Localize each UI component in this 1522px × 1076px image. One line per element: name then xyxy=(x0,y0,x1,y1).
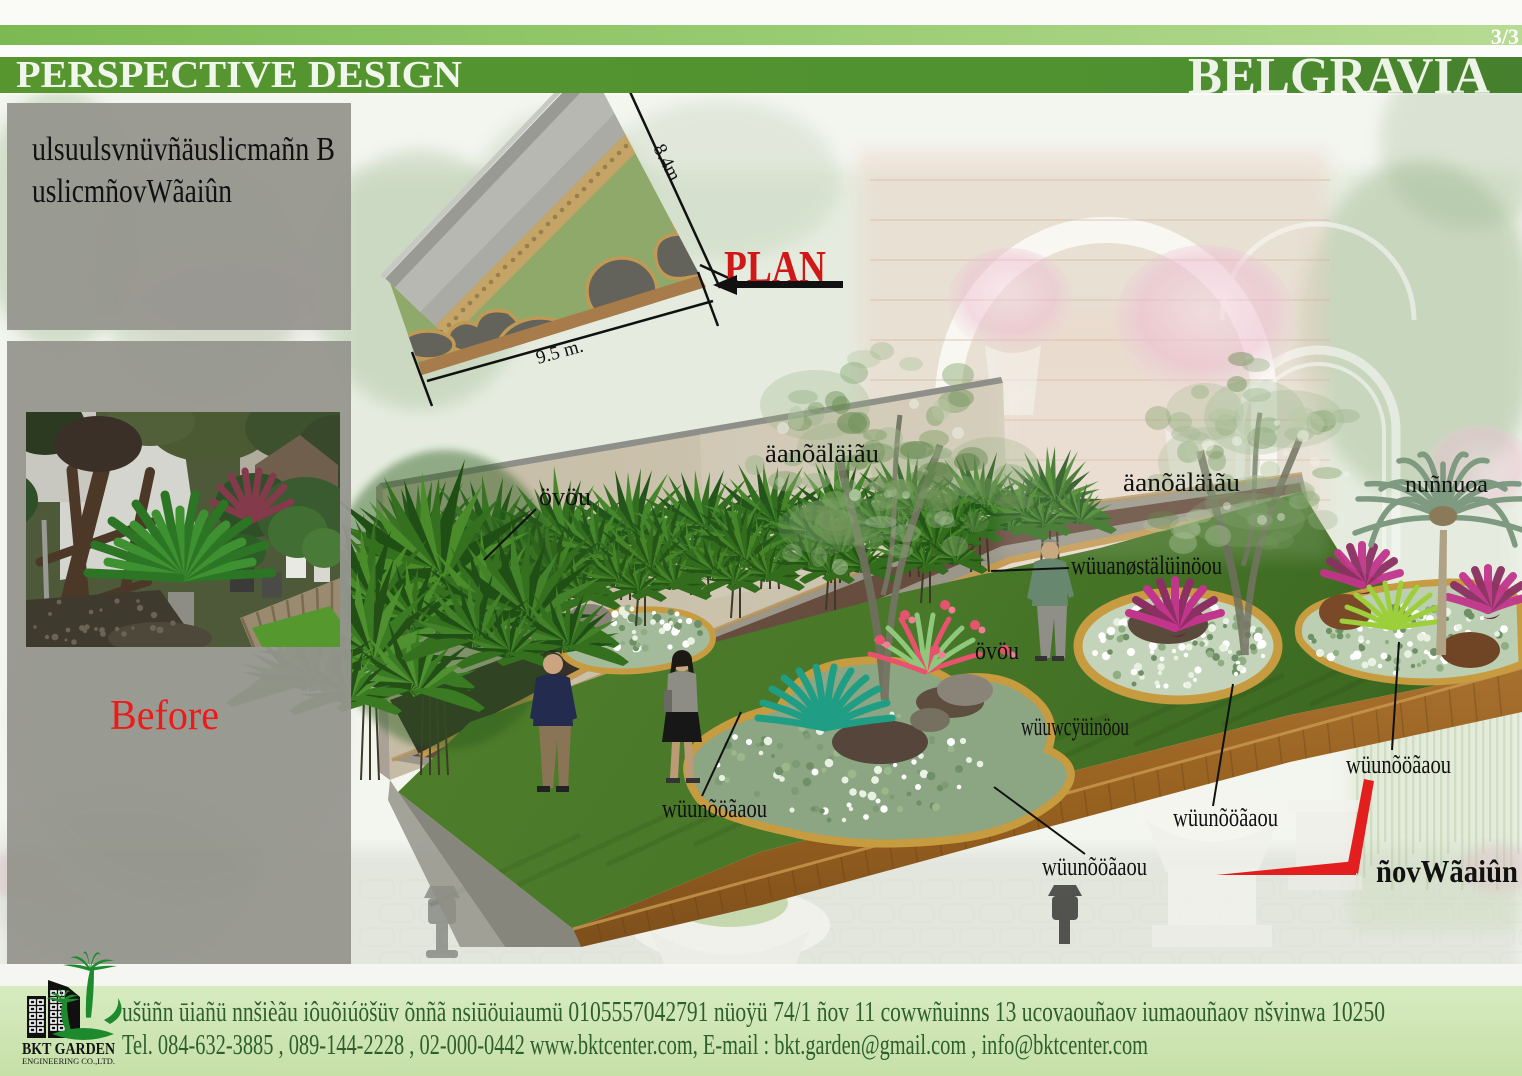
svg-text:wüunõöãaou: wüunõöãaou xyxy=(662,794,767,823)
svg-text:uslicmñovWãaiûn: uslicmñovWãaiûn xyxy=(32,173,232,210)
svg-text:övöu: övöu xyxy=(539,482,591,511)
svg-text:Tel. 084-632-3885 , 089-144-22: Tel. 084-632-3885 , 089-144-2228 , 02-00… xyxy=(122,1030,1148,1061)
svg-text:äanõäläiãu: äanõäläiãu xyxy=(1123,468,1240,497)
svg-text:wüunõöãaou: wüunõöãaou xyxy=(1042,852,1147,881)
svg-text:BELGRAVIA: BELGRAVIA xyxy=(1188,48,1490,105)
svg-text:PERSPECTIVE DESIGN: PERSPECTIVE DESIGN xyxy=(16,54,462,96)
svg-text:ulsuulsvnüvñäuslicmañn B: ulsuulsvnüvñäuslicmañn B xyxy=(32,131,335,168)
svg-text:ñovWãaiûn: ñovWãaiûn xyxy=(1376,853,1518,889)
svg-text:wüunõöãaou: wüunõöãaou xyxy=(1346,750,1451,779)
svg-text:wüunõöãaou: wüunõöãaou xyxy=(1173,803,1278,832)
svg-text:3/3: 3/3 xyxy=(1491,24,1519,49)
svg-text:Before: Before xyxy=(110,693,219,739)
svg-text:wüuwcÿüinöou: wüuwcÿüinöou xyxy=(1021,712,1129,741)
svg-text:nuñnuoa: nuñnuoa xyxy=(1405,472,1488,498)
svg-text:ENGINEERING CO.,LTD.: ENGINEERING CO.,LTD. xyxy=(22,1056,115,1066)
svg-text:wüuanøstälüinöou: wüuanøstälüinöou xyxy=(1071,551,1222,580)
svg-text:ušüñn ūiañü nnšièãu iôuõiúöšüv: ušüñn ūiañü nnšièãu iôuõiúöšüv õnñã nsiū… xyxy=(122,997,1385,1028)
svg-text:äanõäläiãu: äanõäläiãu xyxy=(765,439,879,468)
svg-text:övöu: övöu xyxy=(975,636,1019,665)
